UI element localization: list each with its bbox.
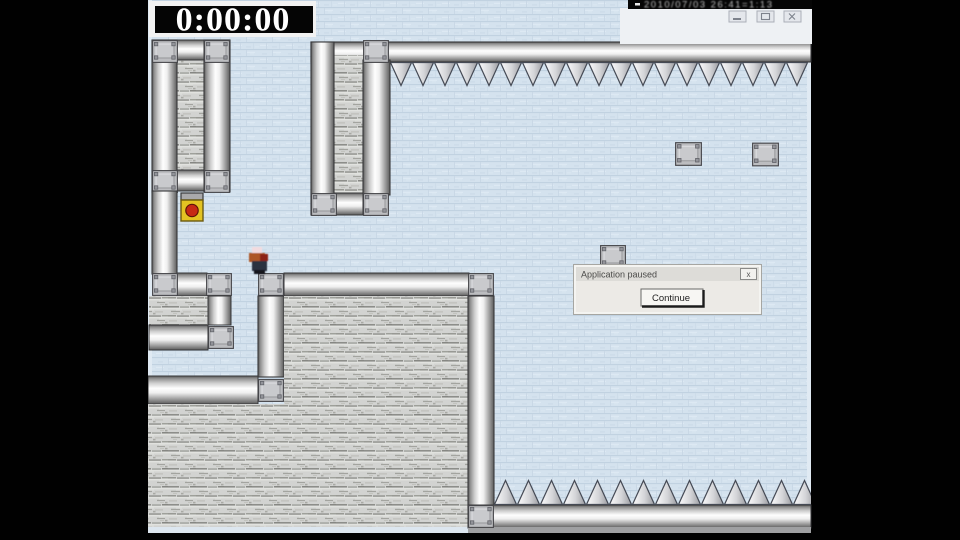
svg-text:0:00:00: 0:00:00 xyxy=(176,2,291,39)
svg-text:Application paused: Application paused xyxy=(581,270,657,280)
svg-text:x: x xyxy=(747,270,751,279)
svg-text:Continue: Continue xyxy=(652,293,690,304)
svg-text:2010/07/03 26:41=1:13: 2010/07/03 26:41=1:13 xyxy=(644,0,774,11)
